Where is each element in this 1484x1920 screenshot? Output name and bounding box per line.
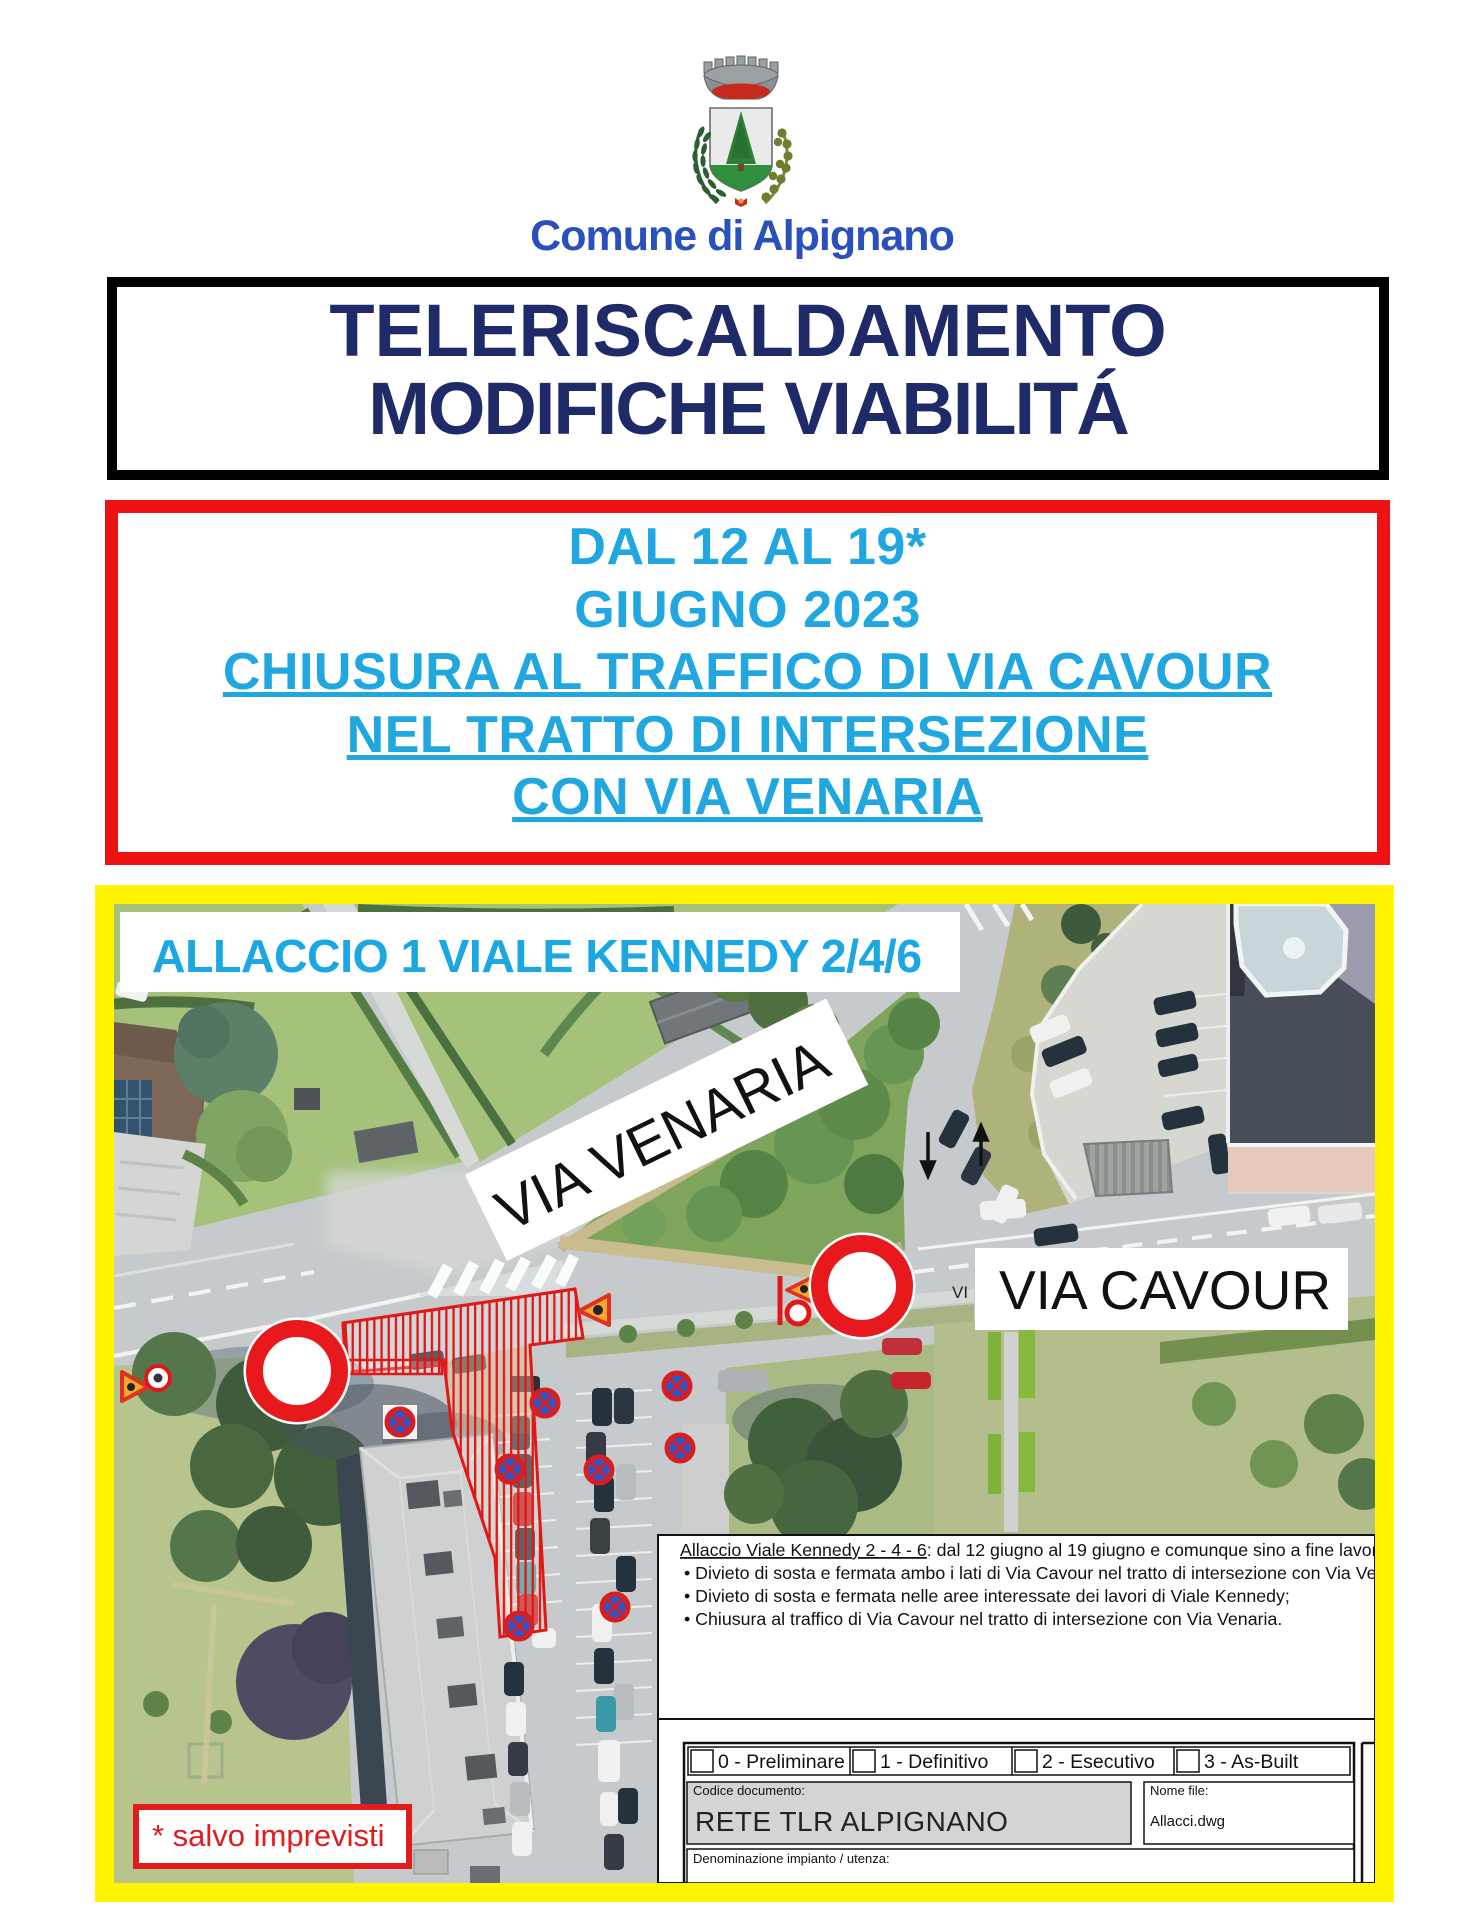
- svg-text:Allaccio Viale Kennedy 2 - 4 -: Allaccio Viale Kennedy 2 - 4 - 6: dal 12…: [680, 1540, 1375, 1560]
- svg-text:• Chiusura al traffico di Via: • Chiusura al traffico di Via Cavour nel…: [684, 1609, 1282, 1629]
- svg-text:RETE TLR ALPIGNANO: RETE TLR ALPIGNANO: [695, 1806, 1008, 1837]
- svg-text:VIA CAVOUR: VIA CAVOUR: [999, 1259, 1331, 1321]
- svg-text:Allacci.dwg: Allacci.dwg: [1150, 1813, 1225, 1830]
- svg-text:Denominazione impianto / utenz: Denominazione impianto / utenza:: [693, 1851, 890, 1866]
- svg-text:0 - Preliminare: 0 - Preliminare: [718, 1751, 845, 1773]
- svg-text:Nome file:: Nome file:: [1150, 1783, 1209, 1798]
- svg-text:1 - Definitivo: 1 - Definitivo: [880, 1751, 989, 1773]
- svg-text:2 - Esecutivo: 2 - Esecutivo: [1042, 1751, 1155, 1773]
- svg-text:Codice documento:: Codice documento:: [693, 1783, 805, 1798]
- svg-text:• Divieto di sosta e fermata a: • Divieto di sosta e fermata ambo i lati…: [684, 1563, 1375, 1583]
- svg-text:VI: VI: [952, 1283, 968, 1302]
- svg-text:ALLACCIO 1 VIALE KENNEDY 2/4/6: ALLACCIO 1 VIALE KENNEDY 2/4/6: [152, 930, 922, 982]
- svg-text:3 - As-Built: 3 - As-Built: [1204, 1751, 1299, 1773]
- svg-text:• Divieto di sosta e fermata n: • Divieto di sosta e fermata nelle aree …: [684, 1586, 1290, 1606]
- svg-text:* salvo imprevisti: * salvo imprevisti: [152, 1818, 385, 1853]
